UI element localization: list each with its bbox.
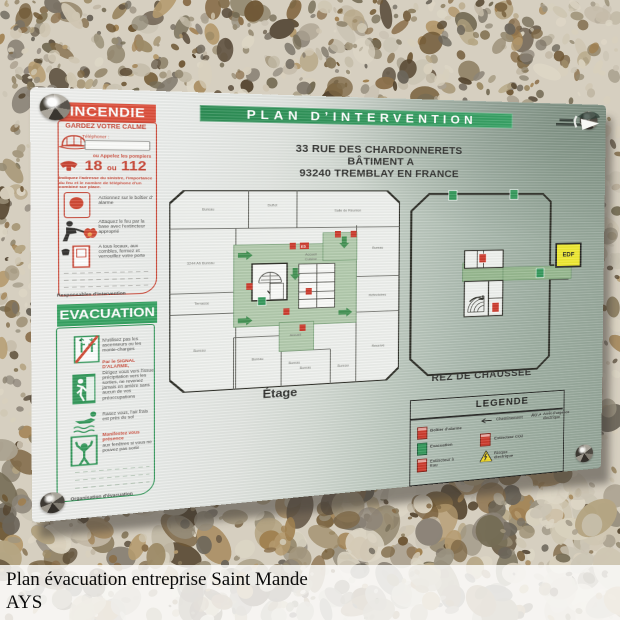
svg-text:Cuisine: Cuisine xyxy=(305,257,318,261)
svg-text:E5: E5 xyxy=(301,244,306,248)
svg-text:Bureau: Bureau xyxy=(300,365,312,370)
svg-text:Duflot: Duflot xyxy=(268,203,278,207)
svg-text:Bureau: Bureau xyxy=(252,356,264,361)
svg-text:Bureau: Bureau xyxy=(193,348,205,353)
svg-text:Accueil: Accueil xyxy=(290,332,302,337)
svg-text:Réserve: Réserve xyxy=(372,343,385,348)
svg-text:Bureau: Bureau xyxy=(372,245,383,249)
svg-text:Bureau: Bureau xyxy=(202,207,214,211)
svg-text:Bureau: Bureau xyxy=(337,363,348,368)
svg-text:Terrasse: Terrasse xyxy=(194,301,210,306)
svg-text:Salle de Réunion: Salle de Réunion xyxy=(334,208,361,212)
svg-text:Bureau: Bureau xyxy=(288,360,300,365)
svg-text:3244 Ah Bureau: 3244 Ah Bureau xyxy=(187,261,215,266)
svg-text:Réfectoires: Réfectoires xyxy=(369,292,386,297)
